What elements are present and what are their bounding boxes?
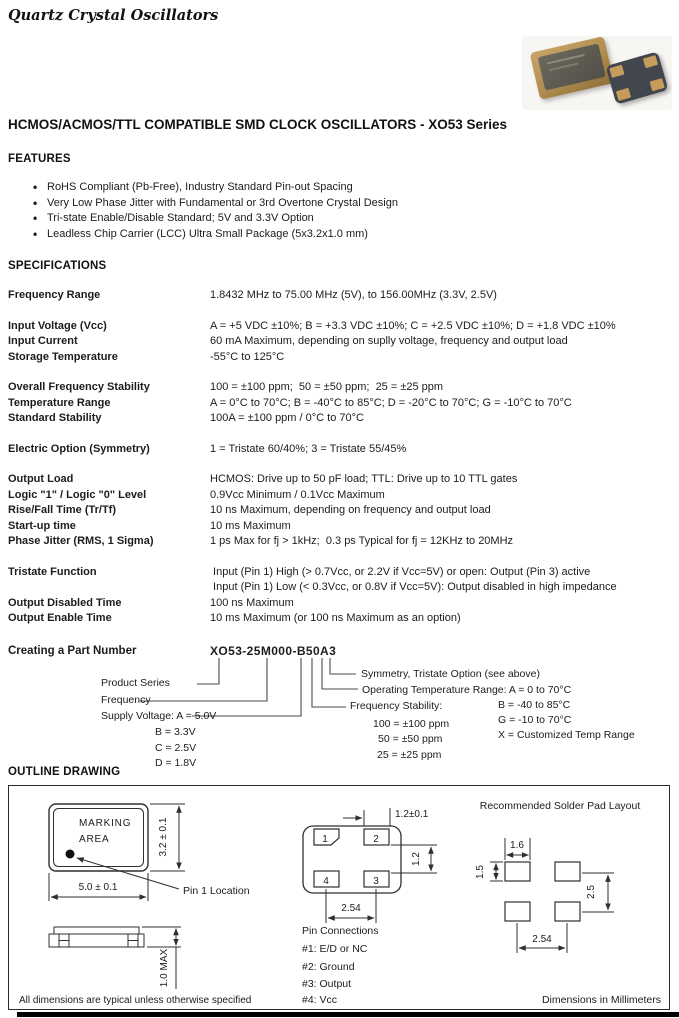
solder-pad (609, 65, 624, 78)
dim-width-label: 5.0 ± 0.1 (79, 882, 118, 893)
features-heading: FEATURES (8, 153, 71, 165)
spec-row: Temperature RangeA = 0°C to 70°C; B = -4… (8, 396, 676, 412)
pin-connections-heading: Pin Connections (302, 925, 378, 937)
spec-value: 100A = ±100 ppm / 0°C to 70°C (210, 411, 676, 427)
pn-label-symmetry: Symmetry, Tristate Option (see above) (361, 668, 540, 681)
outline-drawing-heading: OUTLINE DRAWING (8, 766, 120, 778)
feature-item: Tri-state Enable/Disable Standard; 5V an… (33, 211, 653, 227)
solder-pad (643, 55, 658, 68)
spec-label: Output Disabled Time (8, 596, 210, 612)
pn-option-supply-d: D = 1.8V (155, 757, 196, 770)
pn-option-stability-100: 100 = ±100 ppm (373, 718, 449, 731)
page-footer-bar (17, 1012, 679, 1017)
spec-value: 0.9Vcc Minimum / 0.1Vcc Maximum (210, 488, 676, 504)
solder-pad-layout-title: Recommended Solder Pad Layout (480, 800, 641, 812)
spec-row: Rise/Fall Time (Tr/Tf)10 ns Maximum, dep… (8, 503, 676, 519)
brand-title: Quartz Crystal Oscillators (8, 7, 218, 24)
dim-solder-pad-height-label: 1.5 (475, 865, 486, 879)
pn-option-stability-50: 50 = ±50 ppm (378, 733, 442, 746)
feature-item: Leadless Chip Carrier (LCC) Ultra Small … (33, 227, 653, 243)
dim-lines-solder-pad-height (490, 862, 503, 881)
spec-value: 100 = ±100 ppm; 50 = ±50 ppm; 25 = ±25 p… (210, 380, 676, 396)
pn-label-supply-voltage: Supply Voltage: A = 5.0V (101, 710, 216, 723)
spec-label: Logic "1" / Logic "0" Level (8, 488, 210, 504)
package-bottom-view (303, 826, 401, 893)
spec-row: Tristate Function Input (Pin 1) High (> … (8, 565, 676, 581)
dim-pad-gap-label: 1.2 (411, 852, 422, 866)
marking-area-line2: AREA (79, 834, 109, 845)
feature-text: Leadless Chip Carrier (LCC) Ultra Small … (47, 227, 368, 243)
pin2-number: 2 (373, 834, 379, 845)
outline-drawing-box: MARKING AREA 3.2 ± 0.1 5.0 ± 0.1 Pin 1 L… (8, 785, 670, 1010)
spec-value: A = +5 VDC ±10%; B = +3.3 VDC ±10%; C = … (210, 319, 676, 335)
spec-label: Tristate Function (8, 565, 210, 581)
package-side-view (49, 927, 144, 947)
spec-label: Input Current (8, 334, 210, 350)
solder-pad (616, 88, 631, 101)
feature-item: RoHS Compliant (Pb-Free), Industry Stand… (33, 180, 653, 196)
feature-text: Tri-state Enable/Disable Standard; 5V an… (47, 211, 314, 227)
spec-value: Input (Pin 1) High (> 0.7Vcc, or 2.2V if… (210, 565, 676, 581)
pin-connection-item: #1: E/D or NC (302, 943, 368, 955)
spec-label: Output Enable Time (8, 611, 210, 627)
spec-label: Output Load (8, 472, 210, 488)
pn-option-temp-x: X = Customized Temp Range (498, 729, 635, 742)
specifications-heading: SPECIFICATIONS (8, 260, 106, 272)
dim-solder-v-pitch-label: 2.5 (586, 885, 597, 899)
spec-label: Storage Temperature (8, 350, 210, 366)
spec-row: Electric Option (Symmetry)1 = Tristate 6… (8, 442, 676, 458)
spec-value: 1 ps Max for fj > 1kHz; 0.3 ps Typical f… (210, 534, 676, 550)
spec-row: Frequency Range1.8432 MHz to 75.00 MHz (… (8, 288, 676, 304)
spec-label: Phase Jitter (RMS, 1 Sigma) (8, 534, 210, 550)
pin-connection-item: #2: Ground (302, 961, 355, 973)
pn-label-product-series: Product Series (101, 677, 170, 690)
dim-height-label: 3.2 ± 0.1 (158, 817, 169, 856)
dimensions-note: All dimensions are typical unless otherw… (19, 995, 251, 1006)
spec-row: Output LoadHCMOS: Drive up to 50 pF load… (8, 472, 676, 488)
pin1-number: 1 (322, 834, 328, 845)
solder-pad-layout (505, 862, 580, 921)
spec-label: Input Voltage (Vcc) (8, 319, 210, 335)
pn-option-temp-g: G = -10 to 70°C (498, 714, 571, 727)
dim-thickness-label: 1.0 MAX (159, 949, 170, 988)
spec-value: 100 ns Maximum (210, 596, 676, 612)
spec-row: Overall Frequency Stability100 = ±100 pp… (8, 380, 676, 396)
spec-row: Phase Jitter (RMS, 1 Sigma)1 ps Max for … (8, 534, 676, 550)
spec-row: Standard Stability100A = ±100 ppm / 0°C … (8, 411, 676, 427)
spec-label (8, 580, 210, 596)
spec-row: Output Disabled Time100 ns Maximum (8, 596, 676, 612)
spec-value: -55°C to 125°C (210, 350, 676, 366)
spec-value: 1.8432 MHz to 75.00 MHz (5V), to 156.00M… (210, 288, 676, 304)
spec-row: Input (Pin 1) Low (< 0.3Vcc, or 0.8V if … (8, 580, 676, 596)
spec-value: Input (Pin 1) Low (< 0.3Vcc, or 0.8V if … (210, 580, 676, 596)
pin4-number: 4 (323, 876, 329, 887)
spec-label: Overall Frequency Stability (8, 380, 210, 396)
feature-item: Very Low Phase Jitter with Fundamental o… (33, 196, 653, 212)
spec-value: 10 ms Maximum (210, 519, 676, 535)
outline-drawing: MARKING AREA 3.2 ± 0.1 5.0 ± 0.1 Pin 1 L… (9, 786, 668, 1008)
oscillator-lid (538, 43, 606, 90)
spec-row: Start-up time10 ms Maximum (8, 519, 676, 535)
pn-label-operating-temp: Operating Temperature Range: A = 0 to 70… (362, 684, 571, 697)
pin-connection-item: #3: Output (302, 978, 351, 990)
pin1-location-label: Pin 1 Location (183, 885, 250, 897)
laser-marking-line (549, 63, 579, 72)
spec-value: A = 0°C to 70°C; B = -40°C to 85°C; D = … (210, 396, 676, 412)
features-list: RoHS Compliant (Pb-Free), Industry Stand… (33, 180, 653, 242)
spec-value: 60 mA Maximum, depending on suplly volta… (210, 334, 676, 350)
pn-option-supply-b: B = 3.3V (155, 726, 196, 739)
page-title: HCMOS/ACMOS/TTL COMPATIBLE SMD CLOCK OSC… (8, 117, 507, 132)
pn-option-temp-b: B = -40 to 85°C (498, 699, 570, 712)
spec-value: 10 ms Maximum (or 100 ns Maximum as an o… (210, 611, 676, 627)
solder-pad (650, 78, 665, 91)
dim-pitch-label: 2.54 (341, 903, 361, 914)
pn-option-stability-25: 25 = ±25 ppm (377, 749, 441, 762)
pin-connection-item: #4: Vcc (302, 994, 337, 1006)
feature-text: RoHS Compliant (Pb-Free), Industry Stand… (47, 180, 353, 196)
spec-label: Electric Option (Symmetry) (8, 442, 210, 458)
spec-row: Output Enable Time10 ms Maximum (or 100 … (8, 611, 676, 627)
spec-row: Input Voltage (Vcc)A = +5 VDC ±10%; B = … (8, 319, 676, 335)
spec-label: Temperature Range (8, 396, 210, 412)
dim-solder-h-pitch-label: 2.54 (532, 934, 552, 945)
spec-value: 10 ns Maximum, depending on frequency an… (210, 503, 676, 519)
spec-label: Standard Stability (8, 411, 210, 427)
pin3-number: 3 (373, 876, 379, 887)
pn-label-frequency-stability: Frequency Stability: (350, 700, 442, 713)
marking-area-line1: MARKING (79, 818, 131, 829)
dimensions-in-millimeters: Dimensions in Millimeters (542, 994, 661, 1006)
spec-value: HCMOS: Drive up to 50 pF load; TTL: Driv… (210, 472, 676, 488)
pin1-dot (66, 850, 75, 859)
spec-value: 1 = Tristate 60/40%; 3 = Tristate 55/45% (210, 442, 676, 458)
dim-pad-width-label: 1.2±0.1 (395, 809, 429, 820)
spec-label: Frequency Range (8, 288, 210, 304)
dim-solder-pad-width-label: 1.6 (510, 840, 524, 851)
laser-marking-line (547, 54, 584, 64)
spec-row: Logic "1" / Logic "0" Level0.9Vcc Minimu… (8, 488, 676, 504)
specifications-table: Frequency Range1.8432 MHz to 75.00 MHz (… (8, 288, 676, 627)
spec-label: Rise/Fall Time (Tr/Tf) (8, 503, 210, 519)
spec-row: Storage Temperature-55°C to 125°C (8, 350, 676, 366)
dim-lines-pad-width (343, 808, 390, 826)
feature-text: Very Low Phase Jitter with Fundamental o… (47, 196, 398, 212)
spec-label: Start-up time (8, 519, 210, 535)
pn-label-frequency: Frequency (101, 694, 151, 707)
spec-row: Input Current60 mA Maximum, depending on… (8, 334, 676, 350)
pn-option-supply-c: C = 2.5V (155, 742, 196, 755)
